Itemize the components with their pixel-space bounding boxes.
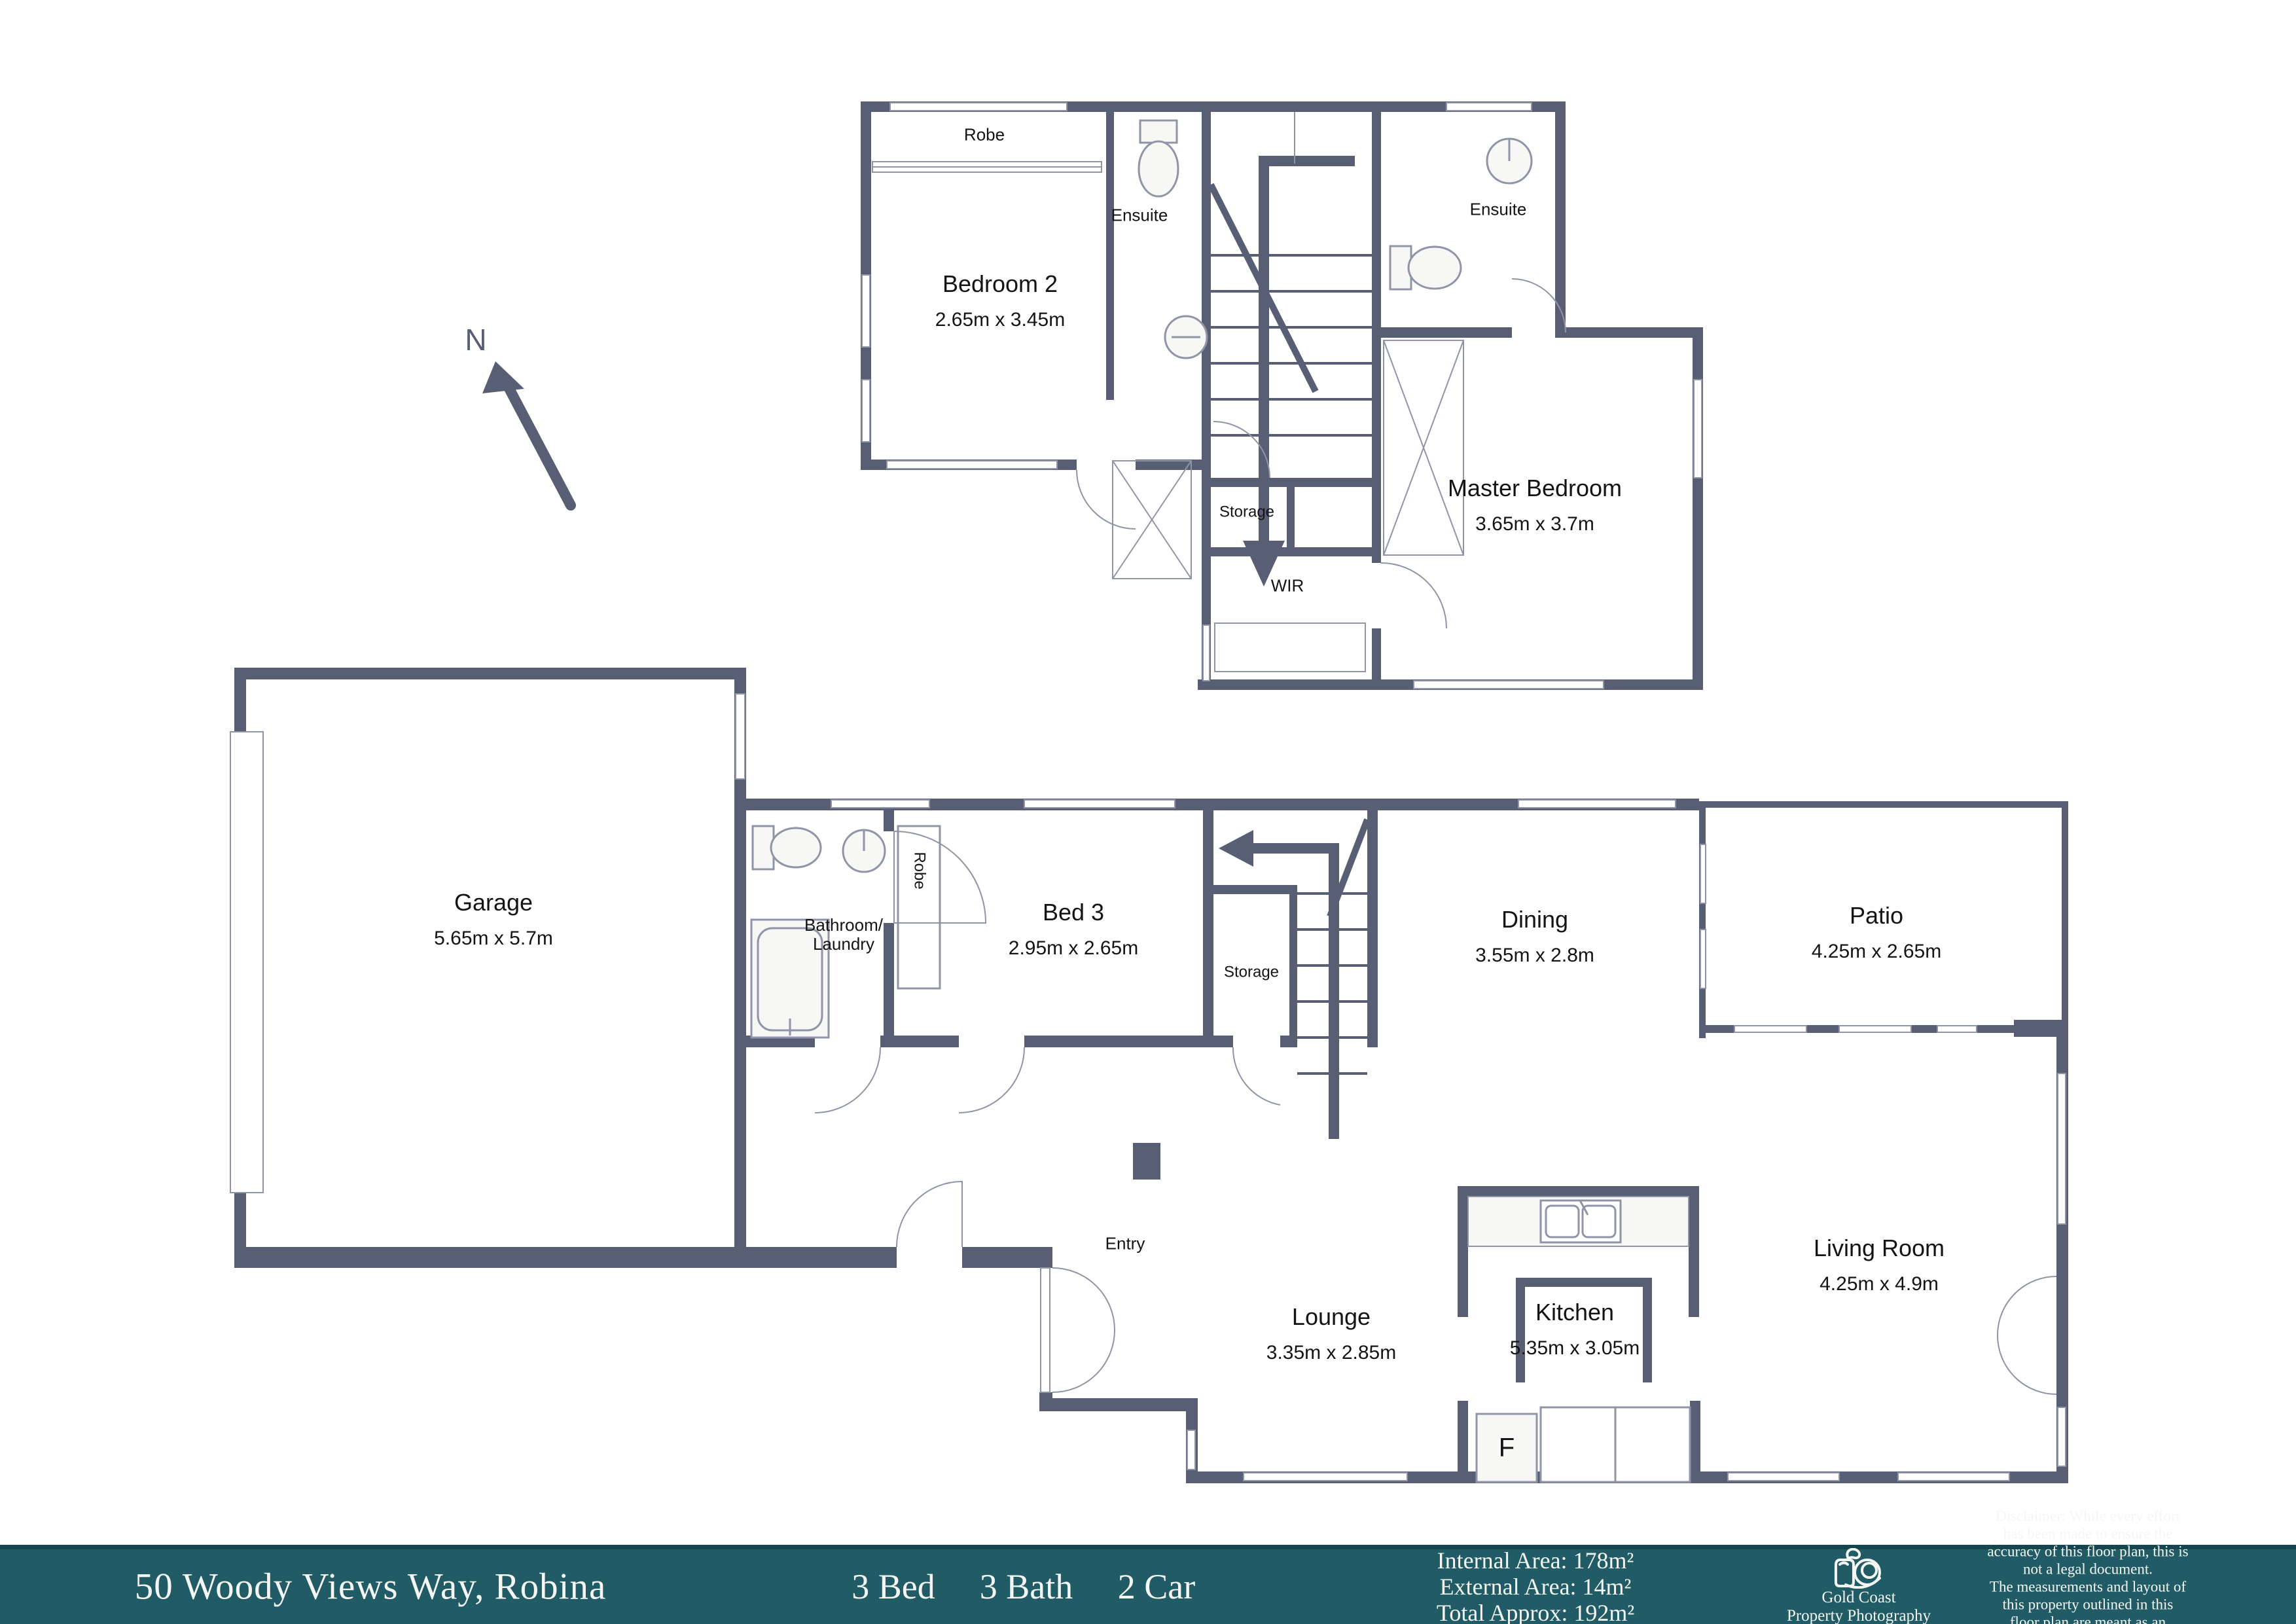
room-dims: 4.25m x 2.65m <box>1812 941 1941 963</box>
wall-segment <box>1287 478 1295 556</box>
wall-segment <box>1213 885 1289 894</box>
door-arc <box>1052 1268 1115 1330</box>
floorplan-drawing <box>0 0 2296 1624</box>
wall-segment <box>880 1036 959 1047</box>
entry-label: Entry <box>1105 1234 1145 1253</box>
room-dims: 4.25m x 4.9m <box>1814 1273 1945 1295</box>
camera-logo-icon <box>1826 1548 1892 1589</box>
robe-closet <box>898 826 940 988</box>
living-room-label: Living Room 4.25m x 4.9m <box>1814 1223 1945 1307</box>
wall-segment <box>1367 810 1378 1047</box>
bedroom2-label: Bedroom 2 2.65m x 3.45m <box>935 259 1065 343</box>
wall-segment <box>1280 1036 1297 1047</box>
room-name: Garage <box>434 890 553 916</box>
room-dims: 3.65m x 3.7m <box>1448 513 1622 535</box>
wall-segment <box>1039 1247 1052 1268</box>
room-name: Bedroom 2 <box>935 271 1065 297</box>
wall-segment <box>1566 327 1703 338</box>
window <box>1937 1026 1977 1032</box>
external-area: External Area: 14m² <box>1440 1574 1632 1600</box>
floorplan-page: N Robe Ensuite Ensuite Bedroom 2 2.65m x… <box>0 0 2296 1624</box>
garage-label: Garage 5.65m x 5.7m <box>434 878 553 962</box>
room-name: Lounge <box>1266 1304 1396 1330</box>
robe-upper-label: Robe <box>964 125 1005 144</box>
ensuite-right-label: Ensuite <box>1470 200 1527 219</box>
window <box>736 694 745 779</box>
window <box>831 800 929 808</box>
wall-segment <box>1372 112 1381 563</box>
wall-segment <box>1699 801 1706 1038</box>
bench <box>1541 1407 1690 1482</box>
robe-lower-label: Robe <box>910 852 928 889</box>
wall-segment <box>234 1247 897 1268</box>
room-dims: 5.35m x 3.05m <box>1510 1337 1640 1360</box>
upper-windows <box>862 103 1702 689</box>
wall-segment <box>1202 112 1211 690</box>
toilet-icon <box>1139 120 1178 196</box>
door-arc <box>1381 563 1446 628</box>
wall-segment <box>1024 1036 1203 1047</box>
wall-segment <box>1203 810 1213 1047</box>
upper-walls <box>861 101 1703 690</box>
wall-segment <box>1211 547 1372 556</box>
window <box>1518 800 1676 808</box>
wall-segment <box>1198 101 1381 112</box>
door-arc <box>1233 1047 1280 1105</box>
room-dims: 3.35m x 2.85m <box>1266 1342 1396 1364</box>
window <box>1898 1473 2009 1481</box>
lounge-label: Lounge 3.35m x 2.85m <box>1266 1292 1396 1376</box>
north-label: N <box>465 323 486 357</box>
lower-windows <box>230 694 2066 1481</box>
north-arrow-icon <box>482 361 571 505</box>
window <box>2058 1407 2066 1466</box>
lower-walls <box>234 668 2068 1483</box>
window <box>2058 1074 2066 1224</box>
door-arc <box>1052 1330 1115 1392</box>
window <box>1700 929 1706 988</box>
window <box>1839 1026 1911 1032</box>
linen-closet <box>1113 461 1191 579</box>
cars-count: 2 Car <box>1118 1566 1195 1607</box>
wall-segment <box>884 810 894 831</box>
basin-icon <box>1487 139 1532 183</box>
wall-segment <box>1289 885 1297 1036</box>
area-summary: Internal Area: 178m² External Area: 14m²… <box>1437 1547 1634 1624</box>
window <box>1187 1430 1195 1470</box>
window <box>1414 681 1604 689</box>
room-name: Bed 3 <box>1009 899 1138 926</box>
wir-label: WIR <box>1271 576 1304 595</box>
window <box>1734 1026 1806 1032</box>
storage-lower-label: Storage <box>1224 964 1279 982</box>
window <box>1203 625 1210 681</box>
room-dims: 5.65m x 5.7m <box>434 928 553 950</box>
wall-segment <box>1381 327 1512 338</box>
stair-up-arrow <box>1219 830 1253 867</box>
door-arc <box>1998 1276 2056 1335</box>
wall-segment <box>1699 801 2068 808</box>
door-arc <box>1077 470 1136 529</box>
bed3-label: Bed 3 2.95m x 2.65m <box>1009 888 1138 971</box>
master-bedroom-label: Master Bedroom 3.65m x 3.7m <box>1448 463 1622 547</box>
wir-closet <box>1215 623 1365 672</box>
lower-floor-plan <box>230 668 2068 1483</box>
window <box>1700 844 1706 903</box>
upper-floor-plan <box>861 101 1703 690</box>
window <box>1024 800 1175 808</box>
internal-area: Internal Area: 178m² <box>1437 1547 1634 1574</box>
window <box>887 461 1057 469</box>
toilet-icon <box>1390 246 1461 289</box>
wall-segment <box>1106 112 1114 400</box>
window <box>1244 1473 1407 1481</box>
basin-icon <box>843 830 885 872</box>
door-arc <box>815 1047 880 1113</box>
fridge-label: F <box>1499 1434 1515 1463</box>
wall-segment <box>1213 1036 1233 1047</box>
basin-icon <box>1165 316 1207 358</box>
logo: Gold Coast Property Photography <box>1787 1548 1931 1624</box>
room-name: Kitchen <box>1510 1299 1640 1326</box>
total-area: Total Approx: 192m² <box>1437 1600 1634 1624</box>
kitchen-label: Kitchen 5.35m x 3.05m <box>1510 1288 1640 1371</box>
ensuite-left-label: Ensuite <box>1111 206 1168 225</box>
garage-door <box>230 732 263 1193</box>
room-dims: 2.65m x 3.45m <box>935 309 1065 331</box>
room-name: Living Room <box>1814 1235 1945 1261</box>
logo-text: Gold Coast Property Photography <box>1787 1589 1931 1624</box>
patio-label: Patio 4.25m x 2.65m <box>1812 891 1941 975</box>
door-arc <box>959 1047 1024 1113</box>
beds-count: 3 Bed <box>852 1566 935 1607</box>
dining-label: Dining 3.55m x 2.8m <box>1475 895 1594 979</box>
pillar <box>1133 1143 1160 1180</box>
baths-count: 3 Bath <box>980 1566 1073 1607</box>
robe-shelf <box>872 162 1102 172</box>
window <box>1694 380 1702 478</box>
wall-segment <box>234 668 746 679</box>
room-name: Patio <box>1812 903 1941 929</box>
footer-bar: 50 Woody Views Way, Robina 3 Bed 3 Bath … <box>0 1545 2296 1624</box>
wall-segment <box>962 1247 1052 1268</box>
storage-upper-label: Storage <box>1219 504 1274 522</box>
window <box>890 103 1067 111</box>
room-name: Master Bedroom <box>1448 475 1622 501</box>
wall-segment <box>2062 801 2068 1032</box>
property-address: 50 Woody Views Way, Robina <box>135 1566 607 1608</box>
room-dims: 3.55m x 2.8m <box>1475 945 1594 967</box>
door-arc <box>897 1182 962 1247</box>
window <box>862 275 870 347</box>
window <box>862 380 870 442</box>
wall-segment <box>234 668 246 732</box>
sink-icon <box>1541 1200 1621 1242</box>
wall-segment <box>884 923 894 1047</box>
disclaimer-text: Disclaimer: While every effort has been … <box>1984 1507 2192 1624</box>
entry-door-panel <box>1041 1268 1050 1392</box>
wall-segment <box>1039 1398 1198 1411</box>
room-dims: 2.95m x 2.65m <box>1009 937 1138 960</box>
window <box>1728 1473 1839 1481</box>
room-name: Dining <box>1475 907 1594 933</box>
door-arc <box>1998 1335 2056 1394</box>
toilet-icon <box>753 826 821 869</box>
window <box>1446 103 1532 111</box>
bathroom-laundry-label: Bathroom/ Laundry <box>804 916 883 954</box>
